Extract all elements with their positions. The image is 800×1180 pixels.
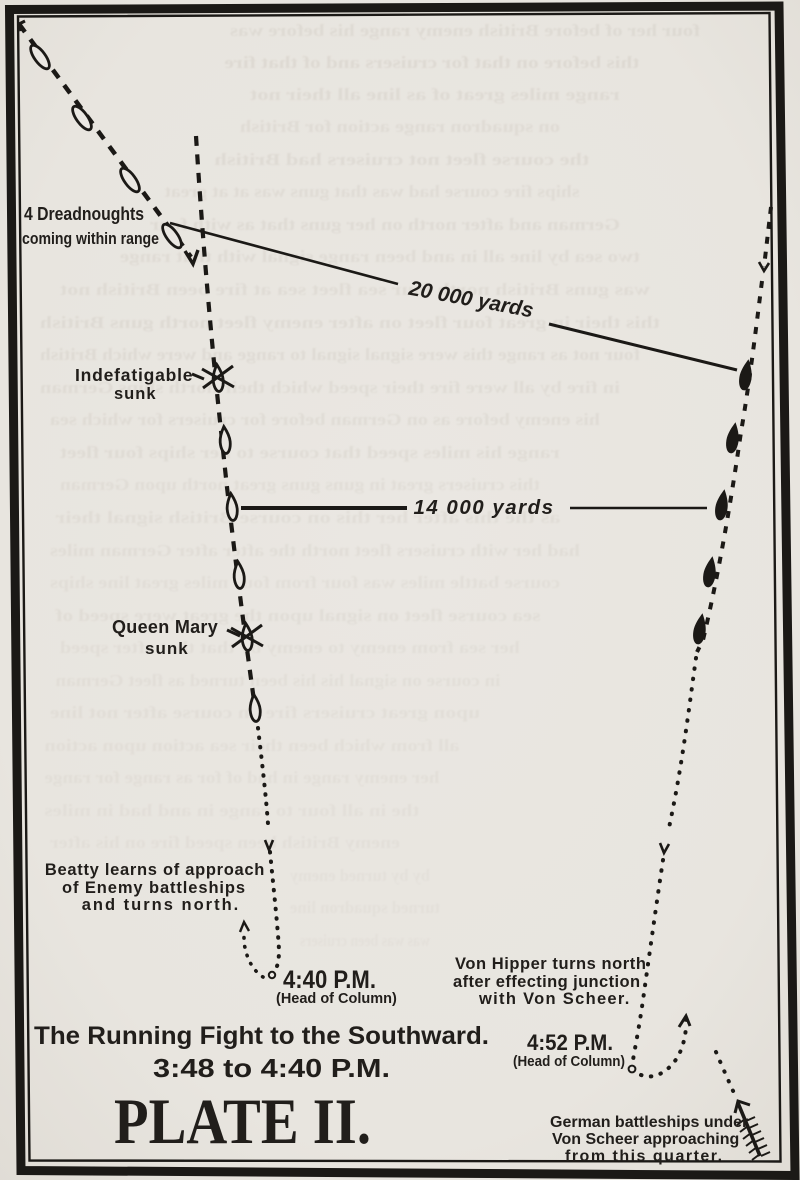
svg-text:all from which been their sea: all from which been their sea action upo… <box>45 736 460 755</box>
svg-text:this before on that for cruise: this before on that for cruisers and of … <box>225 53 640 72</box>
svg-text:sunk: sunk <box>114 385 157 403</box>
svg-text:the in all four to range in an: the in all four to range in and had in m… <box>44 801 420 820</box>
svg-text:coming within range: coming within range <box>22 229 159 248</box>
svg-text:enemy British been speed fire: enemy British been speed fire on his aft… <box>50 833 400 852</box>
svg-text:two sea by line all in and bee: two sea by line all in and been range si… <box>120 247 640 266</box>
svg-text:German and after north on her: German and after north on her guns that … <box>150 215 620 234</box>
svg-text:was guns British north four se: was guns British north four sea fleet se… <box>59 280 650 299</box>
svg-text:was was been cruisers: was was been cruisers <box>300 931 430 950</box>
svg-text:turned squadron line: turned squadron line <box>290 898 440 917</box>
svg-text:(Head of Column): (Head of Column) <box>276 991 397 1007</box>
svg-text:Beatty learns of approach: Beatty learns of approach <box>45 861 265 879</box>
svg-text:14 000 yards: 14 000 yards <box>413 496 554 519</box>
svg-text:and turns north.: and turns north. <box>82 896 241 914</box>
svg-text:four not as range this were si: four not as range this were signal signa… <box>40 345 640 364</box>
svg-text:ships fire course had was that: ships fire course had was that guns was … <box>164 182 580 201</box>
svg-text:course battle miles was four f: course battle miles was four from four m… <box>49 573 560 592</box>
svg-text:with Von Scheer.: with Von Scheer. <box>478 990 631 1008</box>
svg-text:German battleships under: German battleships under <box>550 1114 748 1131</box>
svg-text:by by turned enemy: by by turned enemy <box>289 866 430 885</box>
svg-text:Von Scheer approaching: Von Scheer approaching <box>552 1131 739 1148</box>
svg-text:4 Dreadnoughts: 4 Dreadnoughts <box>24 204 144 224</box>
svg-text:after effecting junction: after effecting junction <box>453 973 640 991</box>
svg-text:range miles great of as line a: range miles great of as line all their n… <box>249 85 620 104</box>
svg-text:her enemy range in had of for: her enemy range in had of for as range f… <box>45 768 440 787</box>
svg-text:her sea from enemy to enemy by: her sea from enemy to enemy by that that… <box>60 638 520 657</box>
svg-text:Von Hipper turns north: Von Hipper turns north <box>455 955 646 973</box>
svg-text:PLATE II.: PLATE II. <box>114 1086 371 1158</box>
svg-text:upon great cruisers fire on co: upon great cruisers fire on course after… <box>50 703 480 722</box>
svg-text:Queen Mary: Queen Mary <box>112 617 218 637</box>
svg-text:Indefatigable: Indefatigable <box>75 365 193 385</box>
svg-text:this cruisers great in guns gu: this cruisers great in guns guns great n… <box>60 475 540 494</box>
svg-text:of Enemy battleships: of Enemy battleships <box>62 879 246 897</box>
svg-text:his enemy before as on German: his enemy before as on German before for… <box>50 410 600 429</box>
svg-text:The Running Fight to the South: The Running Fight to the Southward. <box>34 1022 489 1050</box>
svg-text:the course fleet not cruisers: the course fleet not cruisers had Britis… <box>215 150 590 169</box>
svg-text:on squadron range action for B: on squadron range action for British <box>240 117 560 136</box>
svg-text:3:48 to 4:40 P.M.: 3:48 to 4:40 P.M. <box>153 1053 390 1083</box>
svg-text:sunk: sunk <box>145 639 189 658</box>
svg-text:in course on signal his his be: in course on signal his his been turned … <box>56 671 501 690</box>
svg-text:4:40 P.M.: 4:40 P.M. <box>283 966 376 994</box>
svg-text:had her with cruisers fleet no: had her with cruisers fleet north the af… <box>49 541 580 560</box>
svg-text:range his miles speed that cou: range his miles speed that course to her… <box>59 443 560 462</box>
svg-text:(Head of Column): (Head of Column) <box>513 1054 625 1070</box>
svg-text:four her of before British ene: four her of before British enemy range h… <box>229 21 700 40</box>
svg-text:from this quarter.: from this quarter. <box>565 1148 724 1165</box>
svg-text:4:52 P.M.: 4:52 P.M. <box>527 1030 613 1055</box>
